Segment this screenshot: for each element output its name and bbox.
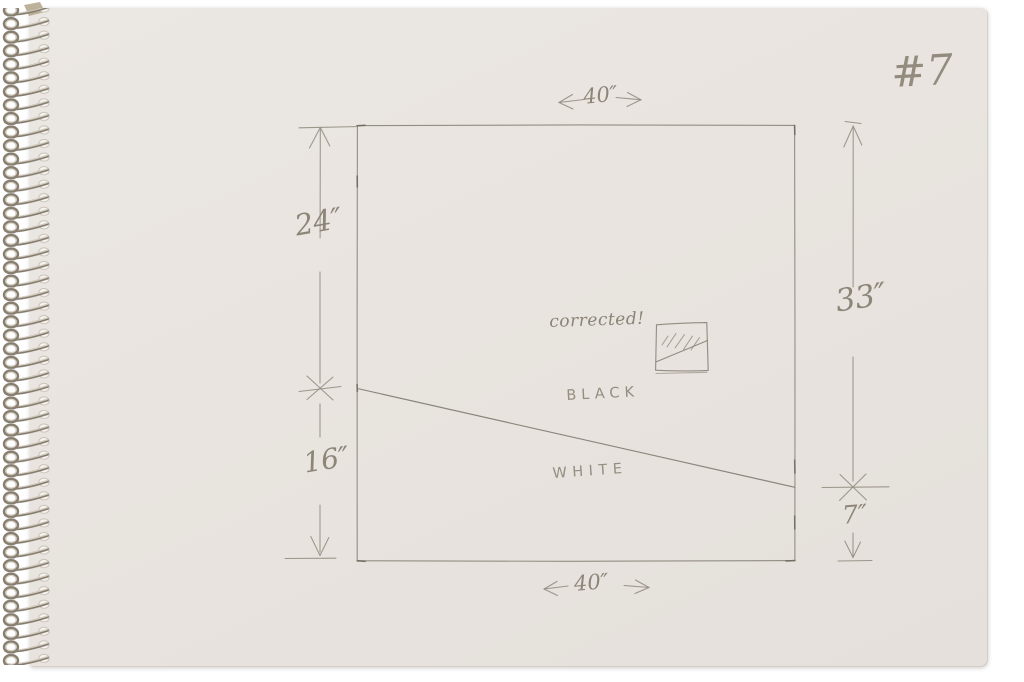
handwritten-note: corrected! xyxy=(549,309,645,332)
sketchbook-page xyxy=(30,8,988,667)
sketchbook-photo: #7 40″ 24″ 16″ 33″ 7″ 40″ corrected! BLA… xyxy=(0,0,1024,682)
page-number: #7 xyxy=(890,45,954,97)
dimension-label-top-width: 40″ xyxy=(582,81,619,108)
spiral-binding-icon xyxy=(0,0,64,682)
dimension-label-bottom-width: 40″ xyxy=(573,569,610,596)
dimension-label-right-lower: 7″ xyxy=(841,499,869,530)
